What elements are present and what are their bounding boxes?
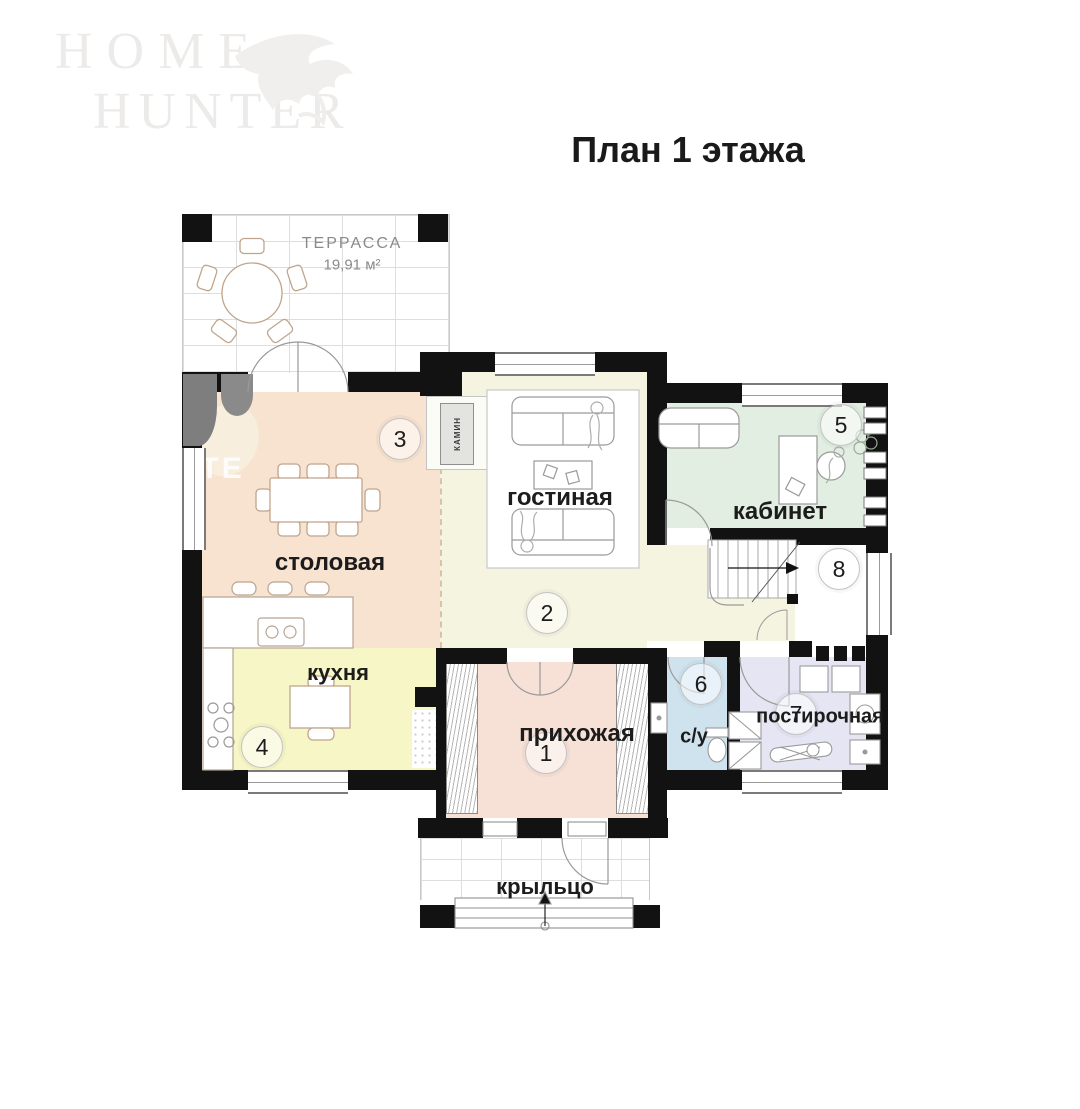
wall: [852, 646, 865, 661]
eagle-icon: [215, 26, 395, 136]
laundry-label: постирочная: [756, 706, 884, 729]
room-number-living: 2: [526, 592, 568, 634]
wall: [348, 770, 440, 790]
room-number-office: 5: [820, 404, 862, 446]
porch-label: крыльцо: [496, 874, 594, 900]
window: [248, 770, 348, 794]
wall: [789, 641, 812, 657]
wall: [182, 770, 248, 790]
wall: [608, 818, 668, 838]
wall: [647, 352, 667, 545]
stove: [208, 703, 234, 747]
wall: [727, 641, 740, 770]
wall: [573, 648, 650, 664]
dining-label: столовая: [275, 549, 385, 577]
wall: [648, 648, 667, 838]
wall: [436, 648, 446, 818]
window: [495, 352, 595, 376]
wall: [517, 818, 562, 838]
corridor-stair-hall: [647, 545, 795, 641]
hallway-wardrobe-left: [446, 662, 478, 814]
wall: [420, 905, 457, 928]
wall: [182, 550, 202, 790]
room-number-wc: 6: [680, 663, 722, 705]
wall: [667, 383, 742, 403]
wall: [633, 905, 660, 928]
hallway-label: прихожая: [519, 720, 635, 748]
fireplace-box: КАМИН: [440, 403, 474, 465]
watermark-shape: [221, 374, 253, 416]
kitchen-label: кухня: [307, 660, 369, 686]
wall: [870, 646, 888, 661]
wall: [418, 214, 448, 242]
home-hunter-logo: HOME HUNTER: [55, 26, 375, 176]
fireplace: КАМИН: [426, 396, 488, 470]
wall: [440, 648, 507, 664]
wall: [420, 352, 462, 396]
floorplan-page: HOME HUNTER План 1 этажа ATE: [0, 0, 1080, 1109]
wall: [418, 818, 483, 838]
window: [866, 553, 892, 635]
fireplace-label: КАМИН: [453, 417, 462, 451]
window: [742, 383, 842, 407]
terrace-label: ТЕРРАССА: [302, 235, 402, 253]
kitchen-pantry-niche: [412, 710, 436, 768]
wall: [842, 770, 888, 790]
wall: [648, 770, 742, 790]
wall: [415, 687, 436, 707]
wall: [462, 352, 495, 372]
room-number-stairs: 8: [818, 548, 860, 590]
wall: [704, 641, 727, 657]
living-label: гостиная: [507, 484, 613, 512]
room-number-kitchen: 4: [241, 726, 283, 768]
window: [742, 770, 842, 794]
terrace-area: 19,91 м²: [323, 257, 380, 274]
wall: [710, 528, 888, 545]
window: [182, 448, 206, 550]
wall: [182, 214, 212, 242]
wc-label: с/у: [680, 726, 708, 749]
room-number-dining: 3: [379, 418, 421, 460]
dining-living-boundary: [440, 468, 442, 648]
wall: [816, 646, 829, 661]
page-title: План 1 этажа: [571, 129, 805, 171]
office-label: кабинет: [733, 498, 827, 526]
wall: [842, 383, 866, 403]
wall: [647, 528, 663, 545]
wall: [834, 646, 847, 661]
